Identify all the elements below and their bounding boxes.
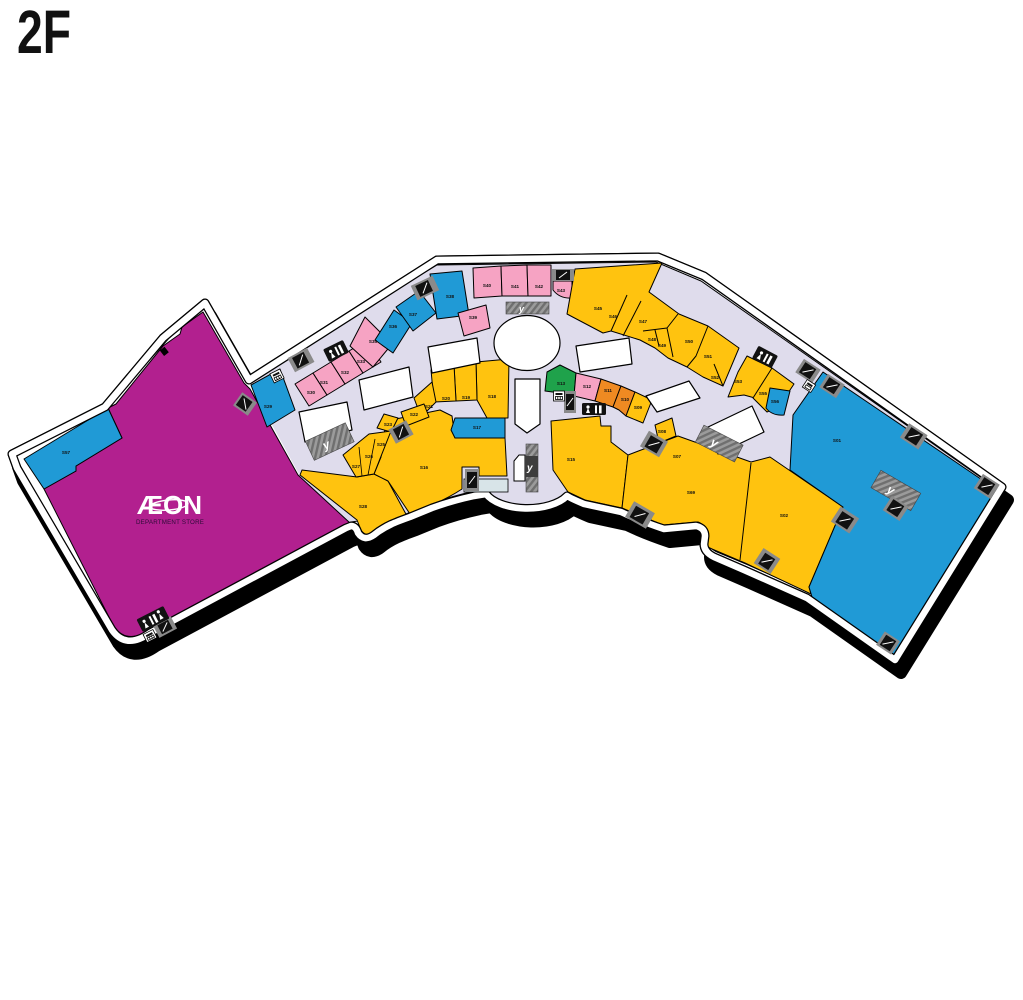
svg-text:y: y — [526, 463, 533, 474]
svg-text:S46: S46 — [609, 314, 618, 319]
svg-text:S48: S48 — [648, 337, 657, 342]
svg-text:S30: S30 — [307, 390, 316, 395]
svg-text:S41: S41 — [511, 284, 520, 289]
svg-text:S45: S45 — [594, 306, 603, 311]
svg-text:S47: S47 — [639, 319, 648, 324]
svg-text:S39: S39 — [469, 315, 478, 320]
svg-text:S20: S20 — [442, 396, 451, 401]
svg-text:S22: S22 — [410, 412, 419, 417]
svg-text:S26: S26 — [365, 454, 374, 459]
svg-text:S28: S28 — [359, 504, 368, 509]
svg-text:S09: S09 — [634, 405, 643, 410]
svg-text:DEPARTMENT STORE: DEPARTMENT STORE — [136, 519, 204, 526]
svg-text:S36: S36 — [389, 324, 398, 329]
svg-text:S21: S21 — [425, 404, 434, 409]
svg-text:S07: S07 — [673, 454, 682, 459]
svg-text:S02: S02 — [780, 513, 789, 518]
svg-text:S10: S10 — [621, 397, 630, 402]
svg-text:S50: S50 — [685, 339, 694, 344]
svg-text:S57: S57 — [62, 450, 71, 455]
svg-text:S40: S40 — [483, 283, 492, 288]
svg-text:y: y — [518, 304, 525, 314]
svg-text:S32: S32 — [341, 370, 350, 375]
svg-text:S08: S08 — [658, 429, 667, 434]
svg-text:S37: S37 — [409, 312, 418, 317]
svg-text:S15: S15 — [567, 457, 576, 462]
svg-text:S23: S23 — [384, 422, 393, 427]
svg-text:S51: S51 — [704, 354, 713, 359]
svg-text:S19: S19 — [462, 395, 471, 400]
svg-text:S13: S13 — [557, 381, 566, 386]
svg-text:S16: S16 — [420, 465, 429, 470]
svg-text:S69: S69 — [687, 490, 696, 495]
svg-text:S52: S52 — [711, 375, 720, 380]
svg-text:S49: S49 — [658, 343, 667, 348]
svg-text:ÆON: ÆON — [137, 490, 202, 520]
svg-text:2F: 2F — [17, 0, 71, 66]
svg-text:S31: S31 — [320, 380, 329, 385]
svg-text:S01: S01 — [833, 438, 842, 443]
svg-text:S12: S12 — [583, 384, 592, 389]
svg-text:S43: S43 — [557, 288, 566, 293]
svg-text:S25: S25 — [377, 442, 386, 447]
svg-text:S38: S38 — [446, 294, 455, 299]
svg-text:S55: S55 — [759, 391, 768, 396]
svg-text:S18: S18 — [488, 394, 497, 399]
svg-text:S33: S33 — [357, 359, 366, 364]
svg-text:S35: S35 — [369, 339, 378, 344]
svg-text:S56: S56 — [771, 399, 780, 404]
svg-text:S11: S11 — [604, 388, 612, 393]
svg-text:S17: S17 — [473, 425, 482, 430]
svg-text:S42: S42 — [535, 284, 544, 289]
svg-text:S29: S29 — [264, 404, 273, 409]
svg-text:S53: S53 — [734, 379, 743, 384]
svg-text:S27: S27 — [352, 464, 361, 469]
